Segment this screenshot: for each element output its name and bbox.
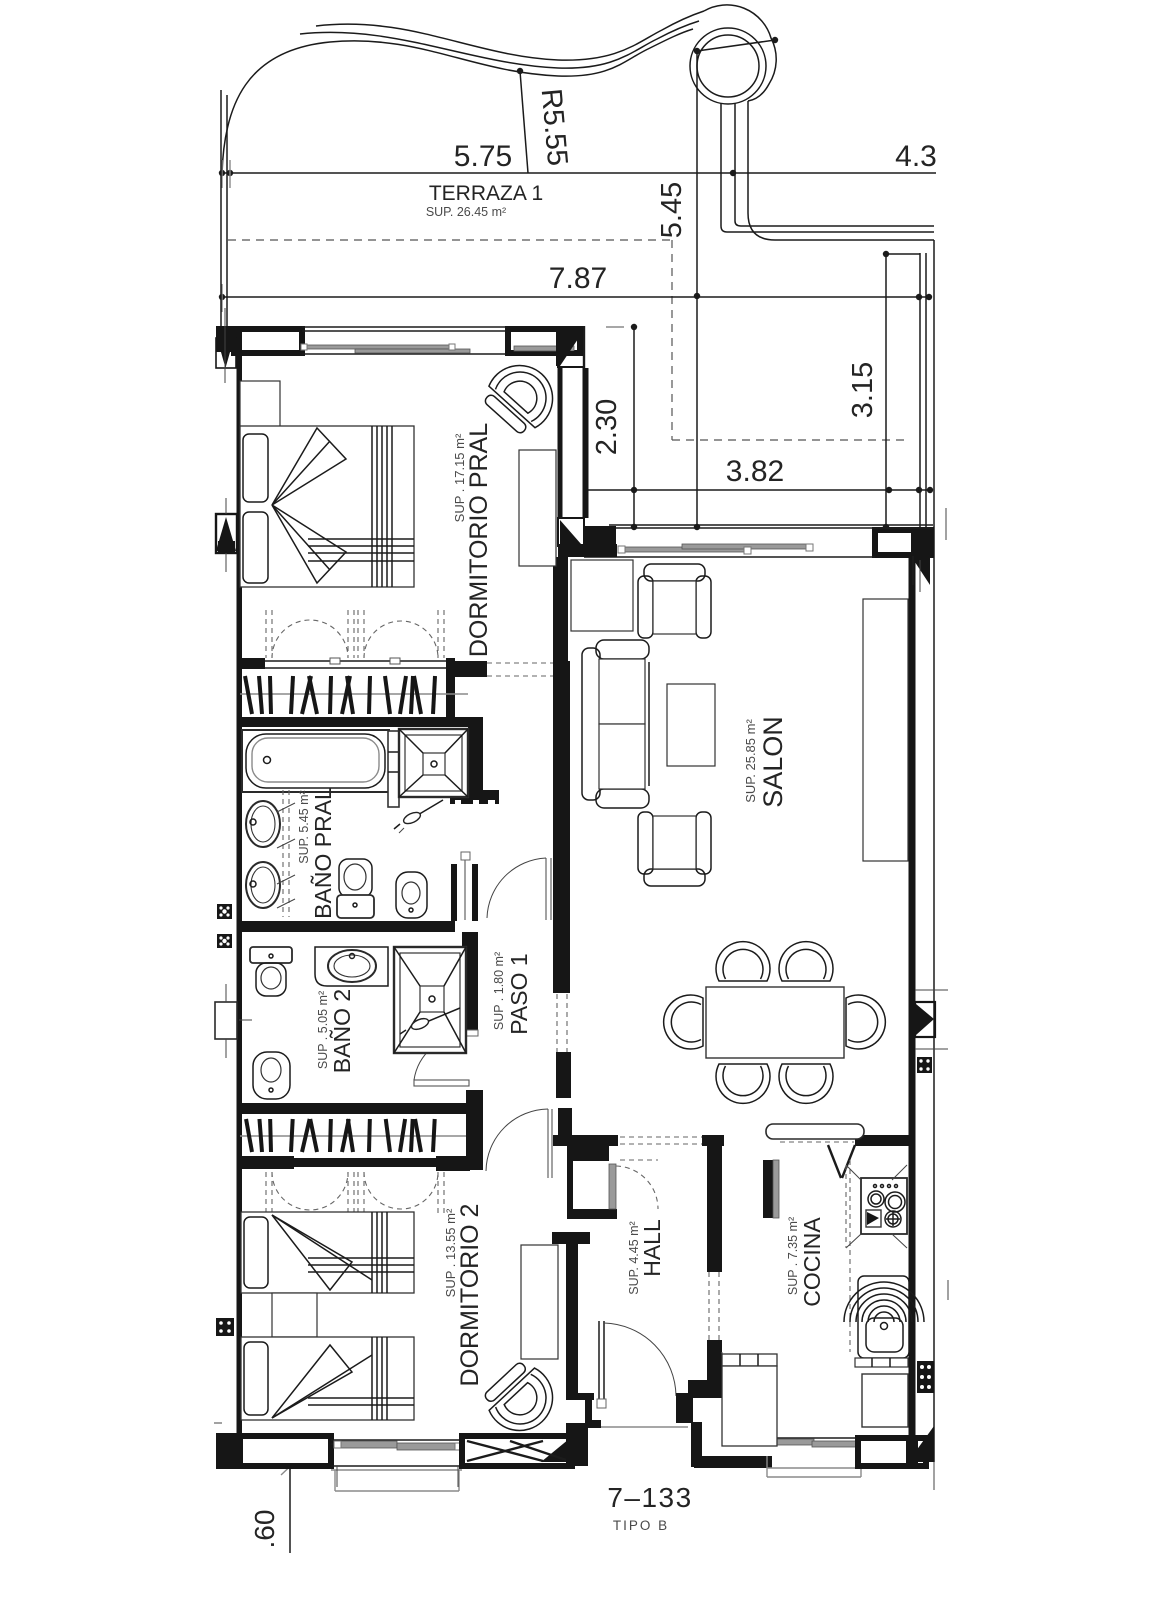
svg-text:TERRAZA 1: TERRAZA 1 (429, 182, 543, 205)
svg-text:SUP . 7.35 m²: SUP . 7.35 m² (786, 1217, 800, 1295)
svg-text:SUP . 5.05 m²: SUP . 5.05 m² (316, 991, 330, 1069)
svg-text:3.15: 3.15 (847, 362, 879, 418)
svg-text:COCINA: COCINA (799, 1217, 825, 1307)
svg-text:SUP . 1.80 m²: SUP . 1.80 m² (492, 952, 506, 1030)
svg-text:DORMITORIO PRAL: DORMITORIO PRAL (465, 423, 493, 657)
svg-text:7.87: 7.87 (549, 262, 607, 295)
svg-text:.60: .60 (249, 1510, 280, 1549)
svg-text:3.82: 3.82 (726, 455, 784, 488)
svg-text:R5.55: R5.55 (535, 87, 574, 167)
svg-text:SUP. 25.85 m²: SUP. 25.85 m² (743, 719, 758, 803)
svg-text:4.3: 4.3 (895, 140, 937, 173)
svg-text:2.30: 2.30 (591, 399, 623, 455)
svg-text:SALON: SALON (758, 716, 788, 808)
svg-text:5.45: 5.45 (656, 182, 688, 238)
svg-text:SUP. 5.45 m²: SUP. 5.45 m² (297, 790, 311, 863)
svg-text:TIPO B: TIPO B (613, 1518, 669, 1533)
svg-text:HALL: HALL (639, 1219, 665, 1277)
svg-text:SUP. 26.45 m²: SUP. 26.45 m² (426, 205, 506, 219)
svg-text:5.75: 5.75 (454, 140, 512, 173)
svg-text:BAÑO 2: BAÑO 2 (329, 989, 355, 1073)
svg-text:DORMITORIO 2: DORMITORIO 2 (456, 1204, 484, 1387)
svg-text:7–133: 7–133 (607, 1482, 692, 1513)
svg-text:BAÑO PRAL: BAÑO PRAL (310, 787, 336, 919)
svg-text:PASO 1: PASO 1 (506, 953, 532, 1034)
